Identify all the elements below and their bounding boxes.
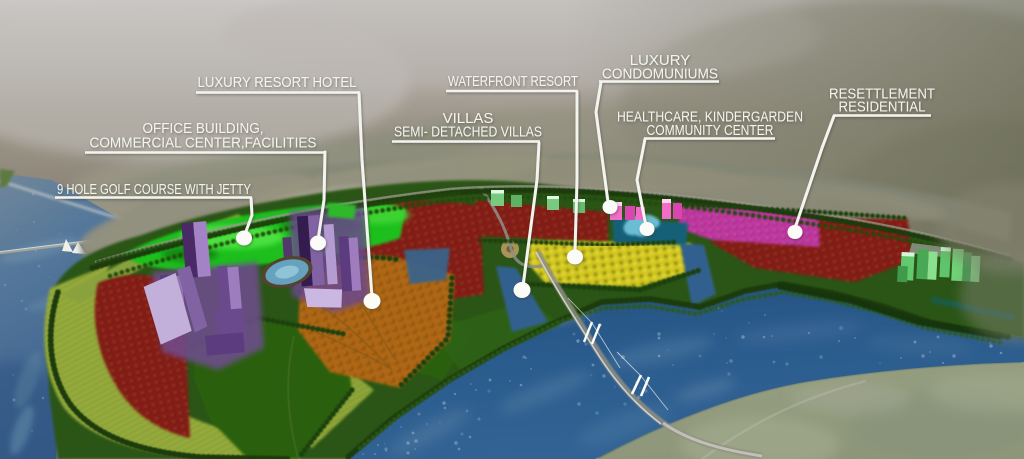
svg-text:COMMUNITY CENTER: COMMUNITY CENTER: [647, 122, 774, 139]
svg-text:WATERFRONT RESORT: WATERFRONT RESORT: [448, 73, 578, 90]
svg-text:RESIDENTIAL: RESIDENTIAL: [839, 99, 926, 116]
svg-text:COMMERCIAL CENTER,FACILITIES: COMMERCIAL CENTER,FACILITIES: [90, 135, 317, 152]
svg-text:9 HOLE GOLF COURSE WITH JETTY: 9 HOLE GOLF COURSE WITH JETTY: [57, 181, 251, 198]
svg-text:CONDOMUNIUMS: CONDOMUNIUMS: [602, 66, 718, 83]
svg-text:SEMI- DETACHED VILLAS: SEMI- DETACHED VILLAS: [394, 124, 542, 141]
svg-text:LUXURY RESORT HOTEL: LUXURY RESORT HOTEL: [198, 74, 357, 91]
